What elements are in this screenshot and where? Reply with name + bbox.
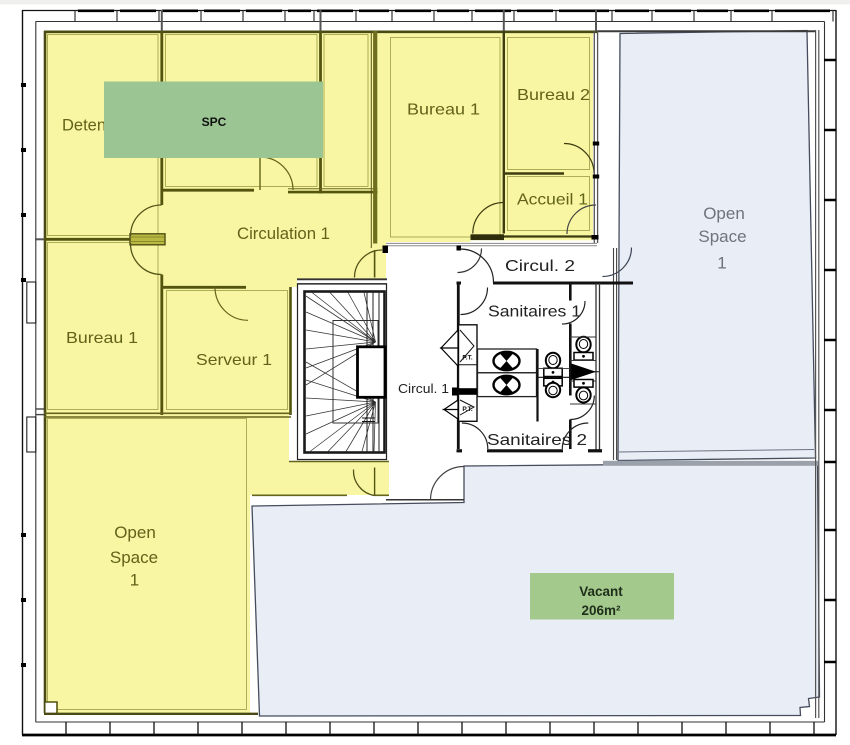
svg-text:Bureau 2: Bureau 2: [517, 87, 590, 104]
svg-text:Sanitaires 1: Sanitaires 1: [488, 304, 581, 321]
svg-text:Space: Space: [698, 227, 746, 246]
svg-text:Open: Open: [114, 523, 156, 542]
svg-text:Bureau 1: Bureau 1: [66, 330, 138, 347]
svg-text:Sanitaires 2: Sanitaires 2: [487, 432, 587, 449]
svg-text:1: 1: [717, 254, 726, 273]
svg-text:P.T.: P.T.: [462, 406, 473, 413]
svg-text:P.T.: P.T.: [462, 355, 473, 362]
svg-text:Circulation 1: Circulation 1: [237, 224, 330, 243]
svg-text:Circul. 2: Circul. 2: [505, 258, 575, 275]
svg-text:Open: Open: [703, 204, 745, 223]
svg-text:1: 1: [130, 571, 139, 590]
svg-text:Space: Space: [110, 548, 158, 567]
svg-text:SPC: SPC: [202, 115, 227, 129]
svg-text:Serveur 1: Serveur 1: [196, 352, 272, 369]
svg-text:Circul. 1: Circul. 1: [398, 381, 449, 396]
svg-text:Vacant: Vacant: [579, 584, 623, 599]
svg-text:Bureau 1: Bureau 1: [407, 102, 480, 119]
svg-text:Accueil 1: Accueil 1: [517, 192, 588, 209]
svg-text:206m²: 206m²: [581, 603, 621, 618]
